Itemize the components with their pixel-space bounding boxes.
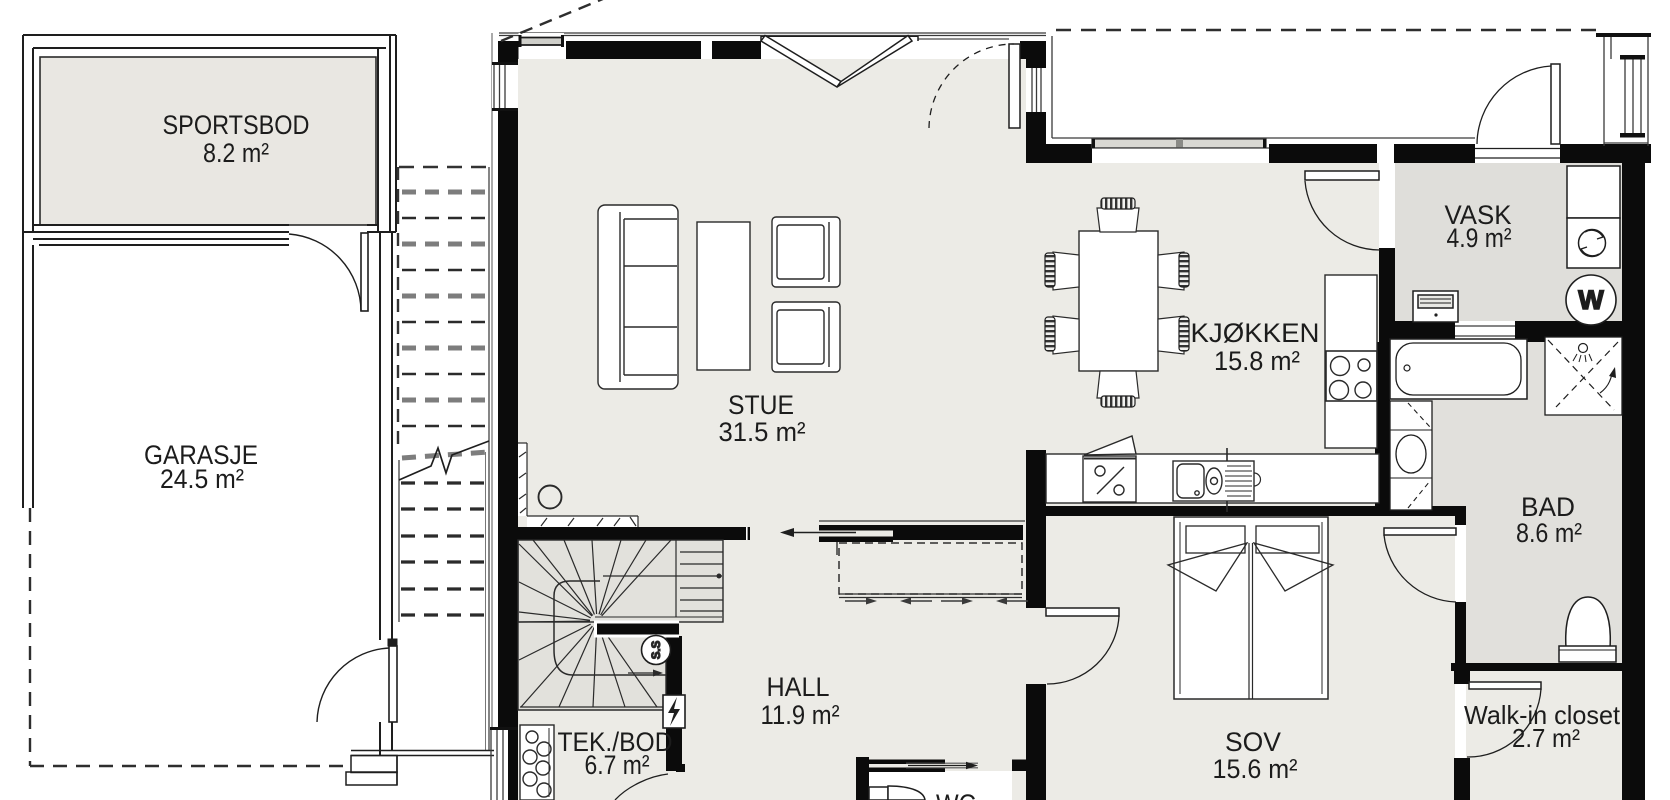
svg-text:4.9 m²: 4.9 m² xyxy=(1447,223,1512,253)
svg-text:31.5 m²: 31.5 m² xyxy=(719,417,806,447)
svg-text:8.2 m²: 8.2 m² xyxy=(203,138,269,168)
svg-text:S.S: S.S xyxy=(651,640,663,659)
svg-text:15.8 m²: 15.8 m² xyxy=(1214,346,1300,376)
svg-text:2.7 m²: 2.7 m² xyxy=(1512,723,1580,753)
svg-text:15.6 m²: 15.6 m² xyxy=(1213,754,1298,784)
svg-text:11.9 m²: 11.9 m² xyxy=(761,700,840,730)
svg-text:WC: WC xyxy=(936,789,976,800)
svg-text:HALL: HALL xyxy=(767,672,830,702)
svg-text:STUE: STUE xyxy=(728,390,794,420)
svg-text:W: W xyxy=(1578,285,1604,315)
svg-text:SPORTSBOD: SPORTSBOD xyxy=(163,110,310,140)
svg-text:6.7 m²: 6.7 m² xyxy=(585,750,650,780)
svg-text:24.5 m²: 24.5 m² xyxy=(160,464,244,494)
svg-text:8.6 m²: 8.6 m² xyxy=(1516,518,1582,548)
svg-text:KJØKKEN: KJØKKEN xyxy=(1191,318,1320,348)
svg-text:SOV: SOV xyxy=(1225,727,1281,757)
